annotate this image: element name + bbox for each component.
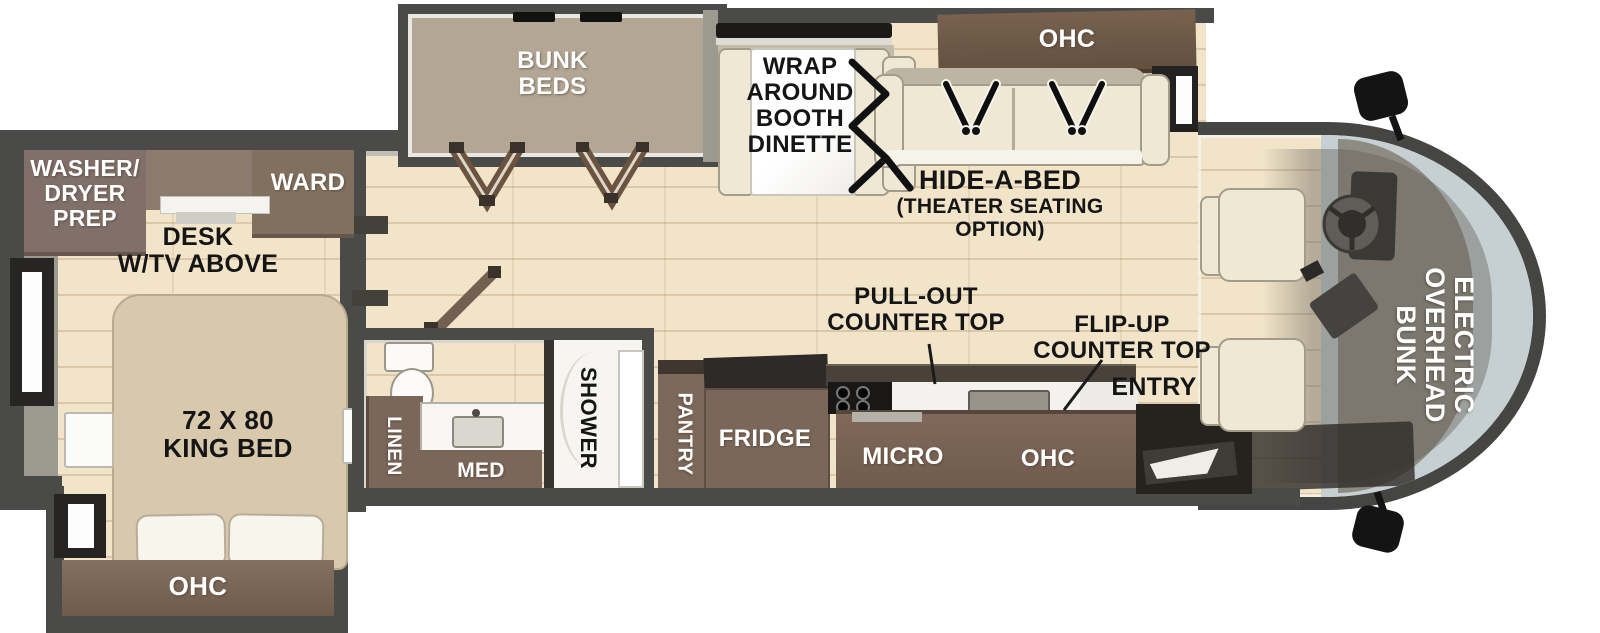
dinette-window-icon: [716, 23, 892, 38]
hall-wall-stub: [352, 216, 388, 234]
hall-wall-stub: [352, 290, 388, 306]
micro-label: MICRO: [845, 444, 961, 470]
living-window-pane: [1176, 76, 1192, 124]
bunk-handle-icon: [580, 12, 622, 22]
bed-slideout-window-pane: [68, 504, 94, 548]
burner-icon: [836, 386, 850, 400]
sofa-armrest: [1140, 74, 1170, 166]
overhead-bunk-label: ELECTRIC OVERHEAD BUNK: [1378, 215, 1478, 475]
kitchen-ohc-label: OHC: [988, 446, 1108, 472]
shower-label: SHOWER: [575, 367, 601, 469]
bunk-handle-icon: [513, 12, 555, 22]
linen-label: LINEN: [382, 416, 404, 476]
rv-floorplan: WASHER/ DRYER PREP WARD DESK W/TV ABOVE …: [0, 0, 1600, 633]
med-label: MED: [420, 460, 542, 483]
desk-label: DESK W/TV ABOVE: [78, 224, 318, 278]
dinette-label: WRAP AROUND BOOTH DINETTE: [716, 54, 884, 158]
entry-label: ENTRY: [1102, 374, 1206, 401]
fridge-label: FRIDGE: [706, 426, 824, 452]
dinette-window-sill: [716, 38, 892, 45]
microwave-icon: [852, 412, 922, 422]
bunk-beds-label: BUNK BEDS: [398, 48, 707, 100]
living-ohc-label: OHC: [938, 26, 1196, 53]
sink-icon: [452, 416, 504, 448]
hide-a-bed-label: HIDE-A-BED: [880, 166, 1120, 195]
ward-label: WARD: [258, 170, 358, 196]
burner-icon: [856, 386, 870, 400]
sofa-seam: [1012, 88, 1015, 158]
bedroom-window-pane: [22, 272, 42, 392]
pantry-label: PANTRY: [673, 393, 696, 476]
king-bed-label: 72 X 80 KING BED: [112, 406, 344, 462]
bedroom-ohc-label: OHC: [62, 572, 334, 600]
nightstand: [64, 412, 114, 468]
sofa-front-band: [886, 150, 1142, 164]
hide-a-bed-sublabel: (THEATER SEATING OPTION): [880, 196, 1120, 241]
bed-slideout-bottom-wall: [46, 614, 348, 633]
shower-door: [618, 350, 644, 488]
door-stop: [488, 266, 501, 278]
side-mirror-icon: [1351, 69, 1410, 124]
driver-seat-icon: [1200, 186, 1304, 280]
flip-up-counter-label: FLIP-UP COUNTER TOP: [1008, 312, 1236, 364]
shower-glass: [544, 340, 554, 494]
faucet-icon: [472, 409, 480, 417]
side-mirror-icon: [1350, 503, 1407, 555]
pull-out-counter-label: PULL-OUT COUNTER TOP: [792, 284, 1040, 336]
washer-dryer-label: WASHER/ DRYER PREP: [22, 156, 148, 230]
